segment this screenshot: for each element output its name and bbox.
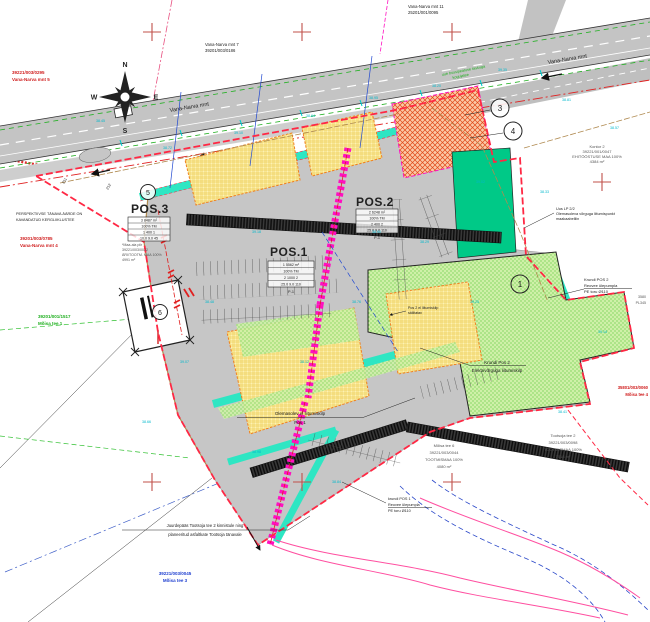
site-plan-svg: Vana-Narva mnt Vana-Narva mnt uue bussip… <box>0 0 650 622</box>
label-maaala-3: ÄRI/TOOTM. MAA 100% <box>122 253 162 257</box>
label-se-1: 35801/003/0060 <box>618 385 649 390</box>
label-persp-2: KAVANDATUD KERGLIIKLUSTEE <box>16 218 75 222</box>
label-ne11-address: Vana-Narva mnt 11 <box>408 4 444 9</box>
label-moisa6-2: 39221/003/0044 <box>430 450 460 455</box>
svg-text:39.02: 39.02 <box>476 180 485 184</box>
pos3-label: POS.3 <box>131 202 169 216</box>
svg-text:25.0 9.0 110: 25.0 9.0 110 <box>281 283 301 287</box>
svg-text:100% TM: 100% TM <box>283 270 298 274</box>
label-p211: 211 <box>61 177 67 184</box>
svg-text:38.29: 38.29 <box>420 240 429 244</box>
svg-text:38.45: 38.45 <box>96 119 105 123</box>
compass-n: N <box>122 62 127 69</box>
label-se-2: Mõisa tee 4 <box>625 392 648 397</box>
svg-text:38.12: 38.12 <box>300 360 309 364</box>
label-tootsoja2-4: 7018 m² <box>556 454 571 459</box>
svg-text:38.81: 38.81 <box>562 98 571 102</box>
pos1-label: POS.1 <box>270 245 308 259</box>
compass-s: S <box>123 128 128 135</box>
svg-text:38.72: 38.72 <box>163 146 172 150</box>
label-elekter2-1: Krundi Pos 2 <box>484 360 510 365</box>
svg-text:2 1000 2: 2 1000 2 <box>284 276 298 280</box>
svg-text:39.35: 39.35 <box>498 68 507 72</box>
label-moisa6-3: TOOTMISMAA 100% <box>425 457 463 462</box>
label-tootsoja2-2: 39221/003/0098 <box>549 440 579 445</box>
label-reovee1-2: Reovee ülepumpla <box>388 503 421 507</box>
label-moisa3-2: Mõisa tee 3 <box>163 578 188 583</box>
label-kilp1-2: Pos 1 <box>294 420 306 425</box>
svg-text:38.76: 38.76 <box>352 300 361 304</box>
label-nw-cadastral: 39221/003/0295 <box>12 70 45 75</box>
svg-text:1: 1 <box>518 280 523 289</box>
label-reovee2-2: Reovee ülepumpla <box>584 283 618 288</box>
svg-text:39.07: 39.07 <box>180 360 189 364</box>
svg-text:38.66: 38.66 <box>142 420 151 424</box>
label-vana4-1: 39201/003/0785 <box>20 236 53 241</box>
label-tootsoja2-1: Tootsoja tee 2 <box>551 433 577 438</box>
label-moisa6-1: Mõisa tee 6 <box>434 443 455 448</box>
label-moisa3-1: 39221/003/0045 <box>159 571 192 576</box>
svg-text:3 8487 m²: 3 8487 m² <box>141 219 158 223</box>
label-juurdepaas-1: Juurdepääs Tootsoja tee 2 kinnistule nin… <box>167 523 244 528</box>
svg-text:P-1: P-1 <box>288 290 294 294</box>
label-maaala-4: 4991 m² <box>122 258 136 262</box>
svg-text:38.98: 38.98 <box>252 450 261 454</box>
svg-text:38.95: 38.95 <box>369 96 378 100</box>
svg-text:39.18: 39.18 <box>252 230 261 234</box>
label-n7-cadastral: 39201/003/0186 <box>205 48 236 53</box>
svg-text:38.41: 38.41 <box>558 410 567 414</box>
compass-w: W <box>91 95 98 102</box>
label-kilp2-2: säilitatav <box>408 311 422 315</box>
svg-text:1 400 1: 1 400 1 <box>143 231 155 235</box>
label-kilp1-1: Olemasolev el liitumiskilp <box>275 411 326 416</box>
compass-e: E <box>154 95 159 102</box>
pos2-label: POS.2 <box>356 195 394 209</box>
svg-text:5: 5 <box>146 190 150 197</box>
svg-text:38.57: 38.57 <box>610 126 619 130</box>
label-reovee2-1: Krundi POS 2 <box>584 277 609 282</box>
label-maaala-2: 39221/003/0022 <box>122 248 148 252</box>
label-elekter2-2: Elektrivõrguga liitumiskilp <box>472 368 523 373</box>
label-p212: 212 <box>105 183 112 190</box>
marker-circle-5: 5 <box>141 185 156 200</box>
label-reovee1-3: PE toru Ø110 <box>388 509 411 513</box>
label-reovee2-3: PE toru Ø110 <box>584 289 609 294</box>
svg-text:100% TM: 100% TM <box>369 217 384 221</box>
svg-text:4: 4 <box>511 127 516 136</box>
svg-text:38.33: 38.33 <box>540 190 549 194</box>
label-uuslp-2: Olemasoleva võrguga liitumispunkt <box>556 212 616 216</box>
svg-text:10.0 9.0 45: 10.0 9.0 45 <box>140 237 158 241</box>
label-vana4-2: Vana-Narva mnt 4 <box>20 243 58 248</box>
label-edge-1: 3580 <box>638 295 646 299</box>
label-tootsoja2-3: TOOTMISMAA 100% <box>544 447 582 452</box>
svg-text:1 5562 m²: 1 5562 m² <box>283 263 300 267</box>
svg-text:38.20: 38.20 <box>432 84 441 88</box>
label-maaala-1: *Maa-ala piir <box>122 243 143 247</box>
label-nw-address: Vana-Narva mnt 5 <box>12 77 50 82</box>
svg-text:38.84: 38.84 <box>332 480 341 484</box>
label-uuslp-1: Uus LP 2/2 <box>556 207 575 211</box>
svg-text:38.90: 38.90 <box>372 230 381 234</box>
svg-text:2 6248 m²: 2 6248 m² <box>369 211 386 215</box>
svg-text:38.48: 38.48 <box>205 300 214 304</box>
label-moisa6-4: 4080 m² <box>437 464 452 469</box>
label-moisa1-1: 39201/001/1517 <box>38 314 71 319</box>
label-kilp2-1: Pos 2 el liitumiskilp <box>408 306 438 310</box>
label-uuslp-3: maakaabelliin <box>556 217 579 221</box>
svg-text:6: 6 <box>158 310 162 317</box>
label-kontor2-4: 4384 m² <box>590 159 605 164</box>
svg-text:39.10: 39.10 <box>234 131 243 135</box>
pos3-block: POS.3 3 8487 m² 100% TM 1 400 1 10.0 9.0… <box>128 202 170 241</box>
label-juurdepaas-2: planeeritud asfaltkate Tootsoja tänavale <box>168 532 242 537</box>
svg-text:38.64: 38.64 <box>306 114 315 118</box>
label-reovee1-1: krundi POS 1 <box>388 497 411 501</box>
marker-circle-6: 6 <box>153 305 168 320</box>
svg-text:39.25: 39.25 <box>470 300 479 304</box>
pos1-block: POS.1 1 5562 m² 100% TM 2 1000 2 25.0 9.… <box>268 245 314 294</box>
site-plan-sheet: Vana-Narva mnt Vana-Narva mnt uue bussip… <box>0 0 650 622</box>
label-n7-address: Vana-Narva mnt 7 <box>205 42 239 47</box>
label-persp-1: PERSPEKTIIVSE TÄNAVA ÄÄRDE ON <box>16 212 83 216</box>
label-ne11-cadastral: 25201/001/0095 <box>408 10 439 15</box>
svg-text:100% TM: 100% TM <box>141 225 156 229</box>
svg-text:3: 3 <box>498 104 503 113</box>
label-moisa1-2: Mõisa tee 1 <box>38 321 63 326</box>
svg-text:39.14: 39.14 <box>598 330 607 334</box>
svg-text:P-1: P-1 <box>374 236 380 240</box>
svg-text:2 400 2: 2 400 2 <box>371 223 383 227</box>
label-edge-2: PL345 <box>636 301 646 305</box>
